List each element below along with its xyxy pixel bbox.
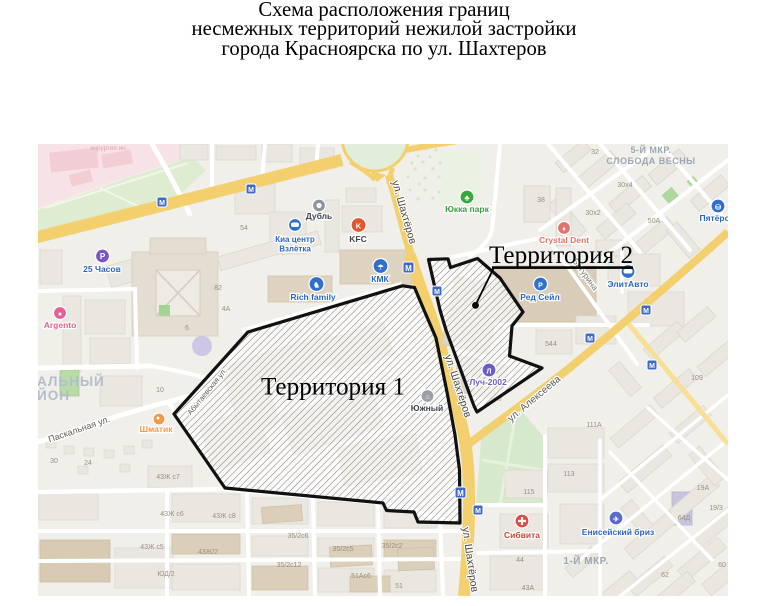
svg-text:●: ●	[156, 415, 160, 422]
svg-text:⌂: ⌂	[425, 394, 429, 401]
svg-text:51Ас6: 51Ас6	[351, 573, 371, 580]
svg-text:K: K	[356, 222, 362, 231]
svg-text:М: М	[649, 363, 655, 370]
svg-text:30х4: 30х4	[617, 182, 632, 189]
svg-text:Енисейский бриз: Енисейский бриз	[582, 527, 654, 537]
svg-text:Л: Л	[487, 369, 492, 376]
svg-text:30х2: 30х2	[585, 210, 600, 217]
svg-text:Rich family: Rich family	[290, 292, 336, 302]
svg-text:Argento: Argento	[44, 320, 77, 330]
svg-text:ЭлитАвто: ЭлитАвто	[607, 279, 648, 289]
svg-text:☂: ☂	[377, 264, 384, 272]
svg-text:43Ж с6: 43Ж с6	[160, 511, 184, 518]
svg-text:6: 6	[185, 325, 189, 332]
svg-text:1-Й МКР.: 1-Й МКР.	[563, 554, 608, 567]
svg-text:43Ж/2: 43Ж/2	[198, 549, 218, 556]
svg-text:ЮД/2: ЮД/2	[157, 571, 174, 578]
svg-text:Пятёроч: Пятёроч	[699, 213, 728, 223]
svg-text:М: М	[248, 187, 254, 194]
svg-text:АЛЬНЫЙ: АЛЬНЫЙ	[38, 374, 105, 389]
svg-text:Сибвита: Сибвита	[504, 530, 540, 540]
svg-text:Территория 1: Территория 1	[261, 374, 405, 401]
svg-text:М: М	[587, 336, 593, 343]
svg-text:35/2с5: 35/2с5	[332, 546, 353, 553]
svg-text:54: 54	[240, 225, 248, 232]
svg-text:43Ж с5: 43Ж с5	[140, 544, 164, 551]
svg-text:113: 113	[563, 471, 574, 478]
svg-text:544: 544	[545, 341, 557, 348]
svg-text:Юкка парк: Юкка парк	[445, 204, 489, 214]
svg-text:Киа центр: Киа центр	[275, 235, 315, 244]
svg-text:P: P	[100, 252, 106, 261]
svg-text:30: 30	[50, 458, 58, 465]
svg-text:19/3: 19/3	[709, 505, 723, 512]
svg-text:115: 115	[523, 489, 534, 496]
svg-text:Взлётка: Взлётка	[279, 245, 311, 254]
svg-text:32: 32	[591, 149, 599, 156]
svg-text:4А: 4А	[222, 306, 231, 313]
svg-text:35/2с6: 35/2с6	[287, 533, 308, 540]
svg-text:43Ж с8: 43Ж с8	[212, 513, 236, 520]
svg-text:КМК: КМК	[371, 274, 389, 284]
svg-text:44: 44	[516, 557, 524, 564]
svg-text:24: 24	[84, 460, 92, 467]
svg-text:Ред Сейл: Ред Сейл	[520, 292, 559, 302]
svg-text:62: 62	[661, 572, 669, 579]
svg-text:35/2с2: 35/2с2	[381, 543, 402, 550]
svg-text:38: 38	[537, 197, 545, 204]
svg-text:♞: ♞	[313, 281, 320, 290]
svg-text:✈: ✈	[613, 516, 619, 524]
svg-text:43А: 43А	[522, 585, 535, 592]
svg-text:М: М	[475, 508, 481, 515]
svg-text:Луч-2002: Луч-2002	[469, 377, 507, 387]
svg-text:⛁: ⛁	[715, 204, 721, 212]
svg-text:Шматик: Шматик	[139, 424, 173, 434]
svg-text:♦: ♦	[562, 226, 566, 233]
svg-text:М: М	[434, 289, 440, 296]
svg-text:М: М	[643, 308, 649, 315]
svg-text:М: М	[405, 264, 412, 273]
svg-text:СЛОБОДА ВЕСНЫ: СЛОБОДА ВЕСНЫ	[606, 156, 695, 166]
svg-text:64Д: 64Д	[678, 515, 691, 522]
svg-text:51: 51	[395, 583, 403, 590]
svg-text:Территория 2: Территория 2	[489, 242, 633, 269]
svg-text:●: ●	[58, 311, 62, 318]
svg-text:Дубль: Дубль	[306, 211, 333, 221]
svg-text:М: М	[159, 200, 165, 207]
svg-text:19А: 19А	[697, 485, 710, 492]
svg-text:М: М	[457, 489, 464, 498]
svg-text:ЙОН: ЙОН	[38, 388, 70, 403]
svg-text:♣: ♣	[464, 194, 470, 203]
svg-text:60: 60	[718, 562, 726, 569]
svg-text:82: 82	[214, 285, 222, 292]
svg-text:43Ж с7: 43Ж с7	[156, 474, 180, 481]
svg-text:KFC: KFC	[349, 234, 366, 244]
svg-text:Р: Р	[538, 283, 543, 290]
svg-text:109: 109	[691, 375, 703, 382]
svg-text:35/2с12: 35/2с12	[277, 562, 302, 569]
svg-text:50А: 50А	[648, 218, 661, 225]
svg-text:25 Часов: 25 Часов	[83, 264, 121, 274]
svg-text:111А: 111А	[586, 422, 602, 429]
svg-text:10: 10	[156, 387, 164, 394]
svg-text:хирургия ин: хирургия ин	[90, 145, 126, 152]
svg-text:Южный: Южный	[411, 403, 444, 413]
svg-text:5-Й МКР.: 5-Й МКР.	[630, 144, 671, 155]
